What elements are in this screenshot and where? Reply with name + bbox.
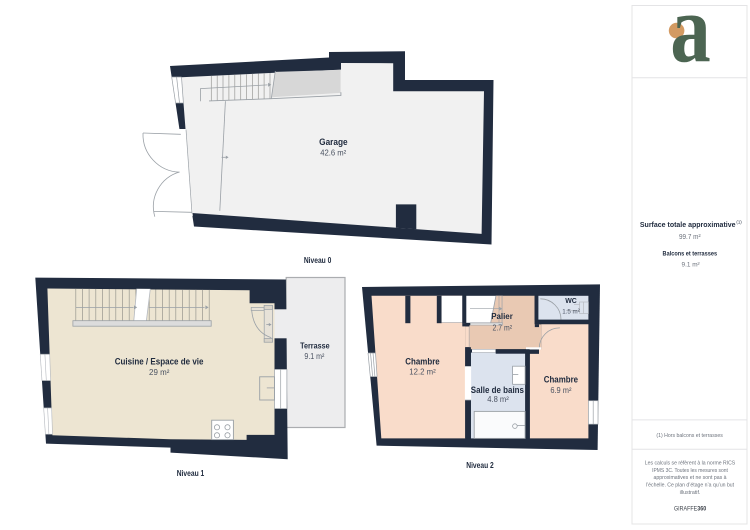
svg-text:2.7 m²: 2.7 m² xyxy=(493,322,513,332)
svg-text:Garage: Garage xyxy=(319,137,348,147)
svg-text:Cuisine / Espace de vie: Cuisine / Espace de vie xyxy=(115,356,204,367)
svg-text:6.9 m²: 6.9 m² xyxy=(550,385,571,395)
svg-text:a: a xyxy=(670,0,711,83)
svg-text:42.6 m²: 42.6 m² xyxy=(320,148,346,158)
svg-text:9.1 m²: 9.1 m² xyxy=(304,352,324,361)
svg-text:(1) Hors balcons et terrasses: (1) Hors balcons et terrasses xyxy=(656,433,723,439)
svg-text:9.1 m²: 9.1 m² xyxy=(682,263,700,269)
svg-text:Surface totale approximative: Surface totale approximative xyxy=(640,222,736,229)
svg-text:approximatives et ne sont pas: approximatives et ne sont pas à xyxy=(654,475,727,481)
svg-text:WC: WC xyxy=(565,296,577,305)
svg-text:Chambre: Chambre xyxy=(405,356,439,366)
svg-text:IPMS 3C. Toutes les mesures so: IPMS 3C. Toutes les mesures sont xyxy=(652,468,728,474)
svg-text:Palier: Palier xyxy=(491,311,513,321)
svg-text:Niveau 0: Niveau 0 xyxy=(304,256,332,265)
svg-text:illustratif.: illustratif. xyxy=(680,490,701,496)
svg-text:GIRAFFE360: GIRAFFE360 xyxy=(674,505,707,512)
svg-text:99.7 m²: 99.7 m² xyxy=(679,234,701,241)
svg-text:Balcons et terrasses: Balcons et terrasses xyxy=(663,251,718,257)
svg-text:4.8 m²: 4.8 m² xyxy=(487,394,509,404)
svg-text:(1): (1) xyxy=(736,219,742,224)
svg-text:12.2 m²: 12.2 m² xyxy=(409,366,436,376)
svg-text:Niveau 1: Niveau 1 xyxy=(177,469,205,478)
svg-text:l’échelle. Ce plan d’étage n’a: l’échelle. Ce plan d’étage n’a qu’un but xyxy=(646,483,735,489)
svg-text:29 m²: 29 m² xyxy=(149,367,170,377)
svg-text:Terrasse: Terrasse xyxy=(300,340,330,350)
svg-text:Chambre: Chambre xyxy=(544,375,578,385)
svg-text:Niveau 2: Niveau 2 xyxy=(466,461,494,470)
svg-text:Les calculs se réfèrent à la n: Les calculs se réfèrent à la norme RICS xyxy=(645,461,736,467)
svg-text:1.5 m²: 1.5 m² xyxy=(562,309,580,316)
